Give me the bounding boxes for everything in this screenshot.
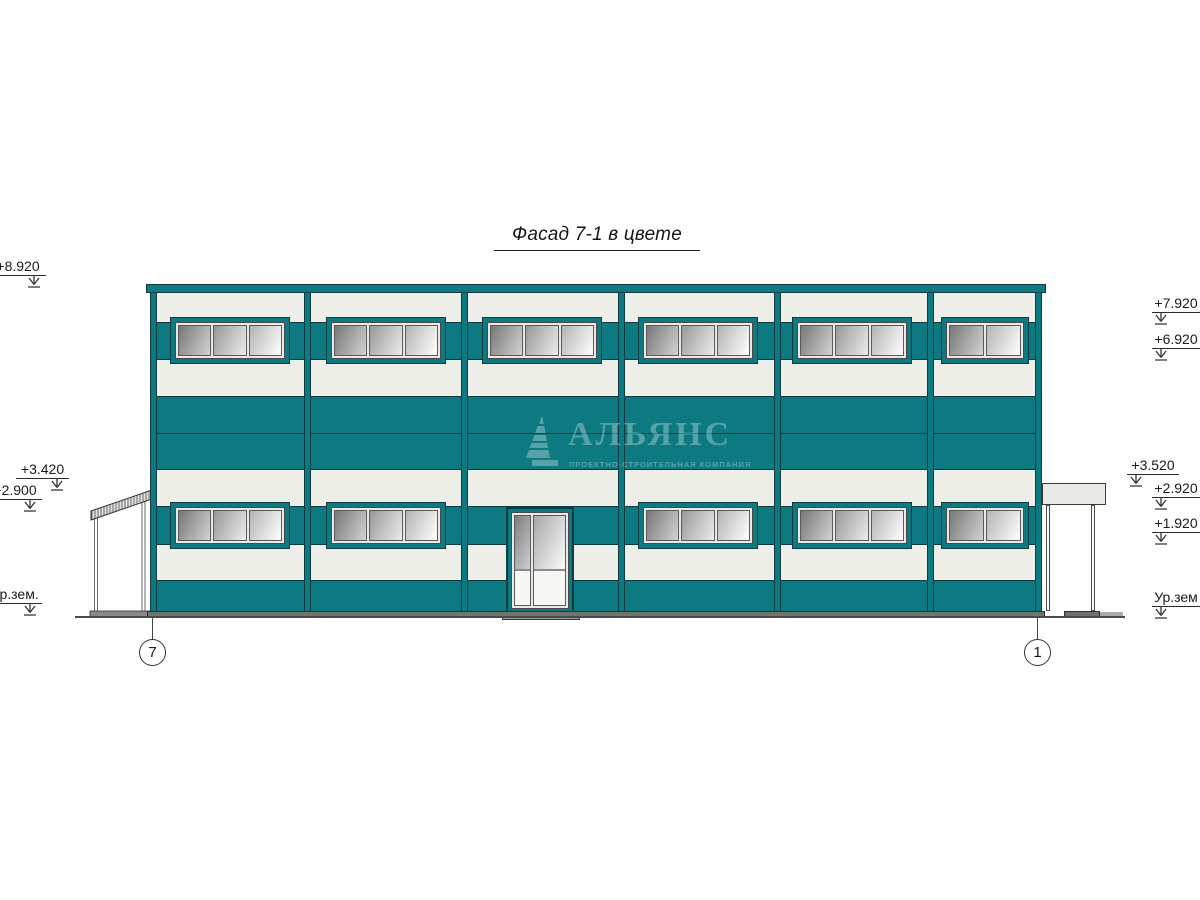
elevation-label: +8.920 [0, 258, 40, 274]
window-pane [334, 325, 367, 356]
elevation-label: Ур.зем [1154, 589, 1198, 605]
facade-band-middle [150, 396, 1042, 470]
window-pane [334, 510, 367, 541]
elevation-arrow-icon [22, 603, 38, 617]
window-pane [490, 325, 523, 356]
window-pane [561, 325, 594, 356]
window [941, 502, 1029, 549]
window-pane [646, 510, 679, 541]
axis-marker-circle: 7 [139, 639, 166, 666]
elevation-label: +2.900 [0, 482, 37, 498]
elevation-mark-right-6920: +6.920 [1152, 331, 1200, 349]
drawing-title: Фасад 7-1 в цвете [494, 224, 700, 251]
window-pane [369, 510, 402, 541]
elevation-mark-right-3520: +3.520 [1127, 457, 1179, 475]
window-pane [871, 510, 904, 541]
window-pane [681, 325, 714, 356]
pilaster [304, 293, 311, 613]
window [792, 317, 912, 364]
axis-leader-line [152, 618, 153, 639]
ground-line [75, 616, 1125, 618]
window-pane [178, 325, 211, 356]
window-pane [949, 510, 984, 541]
pilaster [461, 293, 468, 613]
left-canopy [88, 484, 156, 620]
window-pane [986, 510, 1021, 541]
window-pane [525, 325, 558, 356]
elevation-label: +3.520 [1131, 457, 1174, 473]
window [638, 502, 758, 549]
axis-label: 7 [148, 644, 156, 661]
window-pane [213, 325, 246, 356]
elevation-mark-left-2900: +2.900 [0, 482, 42, 500]
elevation-arrow-icon [26, 275, 42, 289]
window-pane [835, 510, 868, 541]
parapet-coping [146, 284, 1046, 293]
window [941, 317, 1029, 364]
canopy-post [1091, 505, 1095, 611]
pilaster [927, 293, 934, 613]
window-pane [249, 325, 282, 356]
pilaster [1035, 293, 1042, 613]
elevation-arrow-icon [1153, 497, 1169, 511]
pilaster [150, 293, 157, 613]
elevation-mark-right-7920: +7.920 [1152, 295, 1200, 313]
facade-drawing-sheet: Фасад 7-1 в цвете +8.920 +3.420 +2.900 У… [0, 0, 1200, 900]
right-canopy-slab [1042, 483, 1106, 505]
panel-joint-line [150, 433, 1042, 434]
window-pane [986, 325, 1021, 356]
window-pane [405, 510, 438, 541]
door-leaf-wide [533, 515, 566, 606]
window-pane [717, 325, 750, 356]
elevation-label: +2.920 [1154, 480, 1197, 496]
pilaster [618, 293, 625, 613]
elevation-arrow-icon [1153, 348, 1169, 362]
window [170, 317, 290, 364]
elevation-arrow-icon [49, 478, 65, 492]
window-pane [800, 510, 833, 541]
elevation-mark-right-2920: +2.920 [1152, 480, 1200, 498]
window-pane [800, 325, 833, 356]
window [792, 502, 912, 549]
elevation-mark-right-1920: +1.920 [1152, 515, 1200, 533]
elevation-label: +3.420 [21, 461, 64, 477]
window-pane [681, 510, 714, 541]
canopy-post [95, 517, 98, 612]
elevation-arrow-icon [1153, 532, 1169, 546]
facade-band-bottom [150, 580, 1042, 613]
window-pane [949, 325, 984, 356]
elevation-label: +7.920 [1154, 295, 1197, 311]
elevation-arrow-icon [1128, 474, 1144, 488]
canopy-post [142, 502, 145, 612]
window-pane [871, 325, 904, 356]
elevation-arrow-icon [22, 499, 38, 513]
canopy-post [1046, 505, 1050, 611]
pilaster [774, 293, 781, 613]
axis-label: 1 [1033, 644, 1041, 661]
window-pane [405, 325, 438, 356]
window-pane [178, 510, 211, 541]
elevation-label: Ур.зем. [0, 586, 39, 602]
elevation-mark-left-8920: +8.920 [0, 258, 46, 276]
window [170, 502, 290, 549]
window [638, 317, 758, 364]
door-leaf-narrow [514, 515, 531, 606]
window-pane [717, 510, 750, 541]
axis-leader-line [1037, 618, 1038, 639]
elevation-arrow-icon [1153, 312, 1169, 326]
axis-marker-circle: 1 [1024, 639, 1051, 666]
window [326, 502, 446, 549]
elevation-mark-right-ground: Ур.зем [1152, 589, 1200, 607]
window-pane [249, 510, 282, 541]
elevation-arrow-icon [1153, 606, 1169, 620]
window [482, 317, 602, 364]
window-pane [646, 325, 679, 356]
elevation-mark-left-ground: Ур.зем. [0, 586, 42, 604]
elevation-label: +6.920 [1154, 331, 1197, 347]
window-pane [835, 325, 868, 356]
elevation-label: +1.920 [1154, 515, 1197, 531]
window-pane [213, 510, 246, 541]
entrance-door [506, 507, 574, 614]
window [326, 317, 446, 364]
elevation-mark-left-3420: +3.420 [16, 461, 69, 479]
window-pane [369, 325, 402, 356]
